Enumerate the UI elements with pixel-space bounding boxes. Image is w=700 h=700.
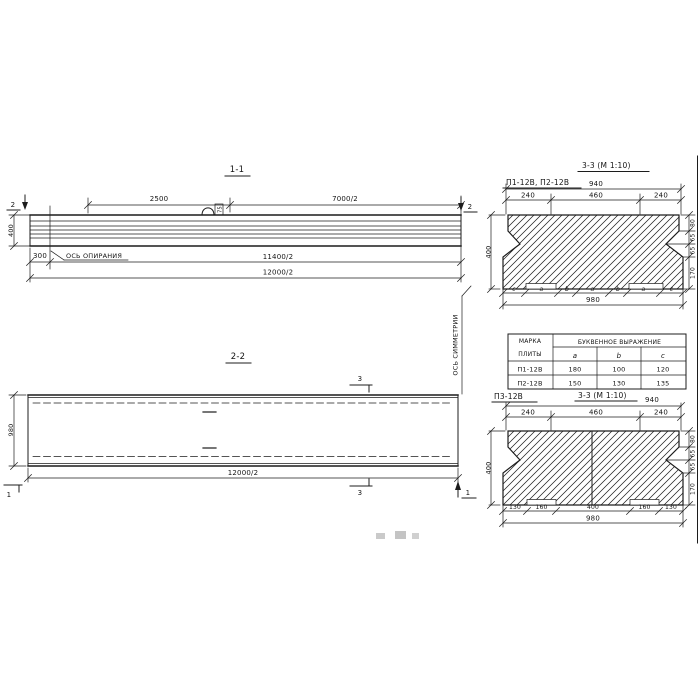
section-marker-2-left: 2 <box>7 195 28 210</box>
table-header-span: БУКВЕННОЕ ВЫРАЖЕНИЕ <box>578 339 661 346</box>
dim-460: 460 <box>589 192 603 200</box>
plan-length-dim: 12000/2 <box>25 468 462 482</box>
section-marker-1-left: 1 <box>4 485 22 499</box>
section-3-3-title: 3-3 (М 1:10) <box>582 161 631 170</box>
section-marker-2-right: 2 <box>458 197 477 212</box>
dim-400: 400 <box>587 504 599 511</box>
dim-980: 980 <box>586 515 600 523</box>
dim-460: 460 <box>589 409 603 417</box>
bottom-recess <box>629 284 663 290</box>
dim-65: 65 <box>690 233 697 241</box>
marker-2-left-label: 2 <box>11 201 16 209</box>
plate-mark-label: П3-12В <box>494 392 523 401</box>
support-axis-callout: ОСЬ ОПИРАНИЯ <box>51 251 128 260</box>
dim-240: 240 <box>521 409 535 417</box>
slab-cross-section-body <box>503 431 683 505</box>
arrow-up-icon <box>455 481 461 490</box>
dim-300: 300 <box>33 252 47 260</box>
symmetry-axis-callout: ОСЬ СИММЕТРИИ <box>452 286 472 394</box>
table-col-b: b <box>617 352 622 360</box>
letter-a: a <box>540 286 544 293</box>
dim-980: 980 <box>586 296 600 304</box>
dim-65: 65 <box>690 449 697 457</box>
section-marker-3-top: 3 <box>350 375 372 392</box>
height-dim-400: 400 <box>7 212 29 250</box>
blueprint-svg: 1-1 2500 7000/2 2 2 <box>0 0 700 700</box>
row-mark: П1-12В <box>517 366 542 374</box>
dim-80: 80 <box>690 435 697 443</box>
dim-160: 160 <box>638 504 650 511</box>
dim-80: 80 <box>690 219 697 227</box>
section-marker-1-right: 1 <box>455 481 476 498</box>
lifting-loop: 75 <box>202 204 224 215</box>
cross-section-p1-p2: 3-3 (М 1:10) П1-12В, П2-12В 940 240 460 … <box>485 161 697 309</box>
beam-elevation <box>30 215 461 246</box>
marker-2-right-label: 2 <box>468 203 473 211</box>
dim-130: 130 <box>665 504 677 511</box>
cross-section-p3: П3-12В 3-3 (М 1:10) 940 240 460 240 <box>485 391 697 527</box>
dim-130: 130 <box>509 504 521 511</box>
marker-1-left-label: 1 <box>7 491 12 499</box>
dim-65: 65 <box>690 462 697 470</box>
dim-7000-2: 7000/2 <box>332 195 358 203</box>
dim-11400-2: 11400/2 <box>263 253 293 261</box>
row-mark: П2-12В <box>517 380 542 388</box>
row-c-value: 135 <box>656 380 669 388</box>
letters-table: МАРКА ПЛИТЫ БУКВЕННОЕ ВЫРАЖЕНИЕ a b c П1… <box>508 334 686 389</box>
marker-1-right-label: 1 <box>466 489 471 497</box>
dim-240: 240 <box>521 192 535 200</box>
loop-label: 75 <box>218 206 224 213</box>
section-2-2-title: 2-2 <box>231 352 245 362</box>
row-c-value: 120 <box>656 366 669 374</box>
slab-cross-section-body <box>503 215 683 289</box>
table-col-a: a <box>573 352 578 360</box>
section-2-2: 2-2 3 980 <box>4 286 476 499</box>
section-marker-3-bottom: 3 <box>350 479 372 497</box>
table-header-marka: МАРКА <box>519 338 542 345</box>
support-axis-label: ОСЬ ОПИРАНИЯ <box>66 252 122 260</box>
dim-12000-2: 12000/2 <box>263 269 293 277</box>
left-dim-400: 400 <box>485 212 506 293</box>
plate-marks-label: П1-12В, П2-12В <box>506 178 569 187</box>
dim-2500: 2500 <box>150 195 169 203</box>
dim-980: 980 <box>7 423 15 436</box>
dim-400: 400 <box>7 224 15 237</box>
section-1-1-title: 1-1 <box>230 165 244 175</box>
bottom-dim-chain: 130 160 400 160 130 980 <box>500 504 687 527</box>
dim-940: 940 <box>589 180 603 188</box>
left-dim-400: 400 <box>485 428 506 509</box>
table-col-c: c <box>661 352 665 360</box>
dim-240: 240 <box>654 409 668 417</box>
section-1-1: 1-1 2500 7000/2 2 2 <box>7 165 477 282</box>
dim-400: 400 <box>485 461 493 474</box>
row-b-value: 100 <box>612 366 625 374</box>
dim-940: 940 <box>645 396 659 404</box>
letter-a: a <box>642 286 646 293</box>
letter-c: c <box>512 286 516 293</box>
row-a-value: 150 <box>568 380 581 388</box>
dim-170: 170 <box>690 483 697 495</box>
width-dim-980: 980 <box>7 392 26 470</box>
letter-a: a <box>591 286 595 293</box>
dim-400: 400 <box>485 245 493 258</box>
plan-view <box>28 395 458 466</box>
dim-65: 65 <box>690 246 697 254</box>
table-row: П2-12В 150 130 135 <box>517 380 669 388</box>
letter-b: b <box>616 286 620 293</box>
dim-240: 240 <box>654 192 668 200</box>
letter-b: b <box>565 286 569 293</box>
section-3-3-title: 3-3 (М 1:10) <box>578 391 627 400</box>
dim-170: 170 <box>690 267 697 279</box>
arrow-down-icon <box>22 202 28 210</box>
loop-icon <box>202 208 214 215</box>
table-row: П1-12В 180 100 120 <box>517 366 669 374</box>
table-header-plity: ПЛИТЫ <box>518 351 541 358</box>
dim-160: 160 <box>535 504 547 511</box>
dim-12000-2: 12000/2 <box>228 469 258 477</box>
marker-3-bottom-label: 3 <box>358 489 363 497</box>
symmetry-axis-label: ОСЬ СИММЕТРИИ <box>452 314 460 375</box>
stamp-artifacts <box>376 531 419 539</box>
letter-c: c <box>670 286 674 293</box>
marker-3-top-label: 3 <box>358 375 363 383</box>
row-b-value: 130 <box>612 380 625 388</box>
row-a-value: 180 <box>568 366 581 374</box>
drawing-sheet: 1-1 2500 7000/2 2 2 <box>0 0 700 700</box>
